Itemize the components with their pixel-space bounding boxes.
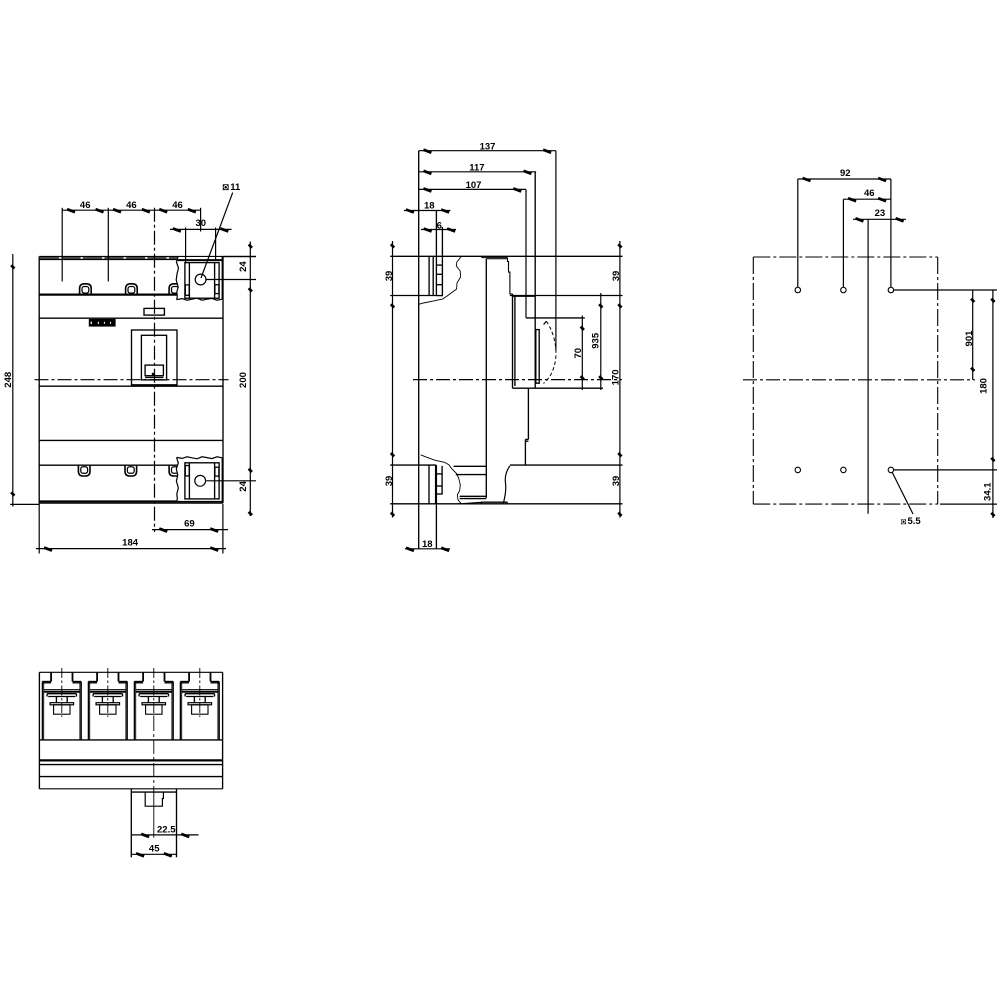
- svg-text:170: 170: [611, 369, 622, 385]
- svg-text:23: 23: [875, 208, 886, 219]
- svg-text:24: 24: [238, 480, 249, 491]
- svg-text:107: 107: [466, 180, 482, 191]
- svg-text:117: 117: [469, 163, 484, 174]
- svg-text:92: 92: [840, 168, 851, 179]
- svg-text:70: 70: [573, 348, 584, 359]
- svg-text:248: 248: [3, 372, 14, 388]
- svg-text:45: 45: [149, 843, 160, 854]
- svg-text:184: 184: [122, 538, 139, 549]
- svg-text:6: 6: [437, 221, 442, 232]
- svg-text:180: 180: [979, 378, 990, 394]
- svg-text:935: 935: [591, 332, 602, 349]
- svg-text:200: 200: [238, 372, 249, 388]
- svg-text:46: 46: [172, 200, 183, 211]
- svg-text:46: 46: [126, 200, 137, 211]
- svg-text:34.1: 34.1: [983, 482, 994, 501]
- svg-text:11: 11: [230, 182, 241, 193]
- svg-text:39: 39: [611, 476, 622, 487]
- svg-text:18: 18: [424, 200, 435, 211]
- svg-text:46: 46: [80, 200, 91, 211]
- svg-text:18: 18: [422, 539, 433, 550]
- svg-text:30: 30: [196, 218, 207, 229]
- svg-text:24: 24: [238, 261, 249, 272]
- svg-text:5.5: 5.5: [908, 516, 922, 527]
- svg-text:39: 39: [384, 476, 395, 487]
- svg-text:69: 69: [184, 518, 195, 529]
- svg-text:39: 39: [384, 271, 395, 282]
- svg-text:137: 137: [480, 141, 496, 152]
- svg-text:46: 46: [864, 188, 875, 199]
- svg-text:901: 901: [964, 330, 975, 347]
- svg-text:39: 39: [611, 271, 622, 282]
- svg-text:22.5: 22.5: [157, 824, 176, 835]
